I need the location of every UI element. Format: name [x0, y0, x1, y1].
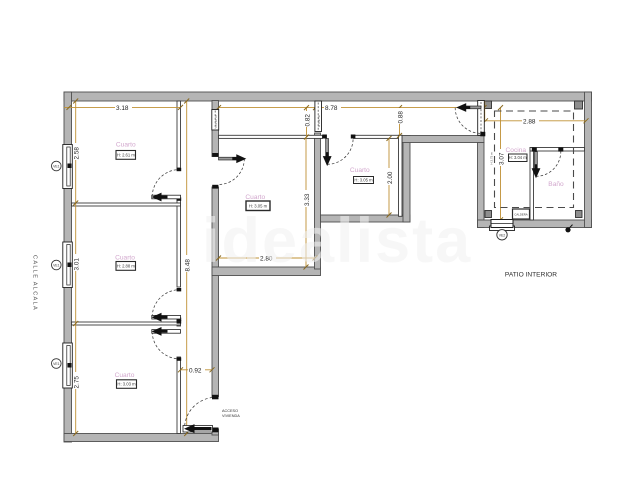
svg-text:8.78: 8.78 — [325, 105, 338, 112]
svg-text:VE1: VE1 — [53, 165, 60, 169]
svg-text:VE2: VE2 — [499, 233, 506, 237]
svg-text:H 2.72 m: H 2.72 m — [490, 152, 494, 165]
svg-text:idealista: idealista — [202, 206, 472, 276]
svg-text:2.88: 2.88 — [523, 119, 536, 126]
svg-text:3.01: 3.01 — [74, 258, 81, 271]
svg-text:3.07: 3.07 — [499, 152, 506, 165]
svg-text:CALLE ALCALA: CALLE ALCALA — [32, 255, 38, 311]
svg-text:0.92: 0.92 — [189, 368, 202, 375]
svg-text:Cuarto: Cuarto — [245, 194, 265, 201]
svg-text:H 0.97 m: H 0.97 m — [214, 115, 218, 128]
svg-text:2.00: 2.00 — [387, 171, 394, 184]
svg-text:H: 3.04 m: H: 3.04 m — [509, 155, 528, 160]
svg-text:Baño: Baño — [548, 181, 564, 188]
svg-text:Cuarto: Cuarto — [115, 254, 135, 261]
svg-text:VE1: VE1 — [53, 362, 60, 366]
svg-text:0.88: 0.88 — [398, 111, 405, 124]
svg-text:H: 2.61 m: H: 2.61 m — [117, 153, 136, 158]
svg-text:8.48: 8.48 — [185, 259, 192, 272]
svg-text:H: 3.03 m: H: 3.03 m — [117, 382, 136, 387]
svg-text:3.18: 3.18 — [116, 105, 129, 112]
svg-text:VE1: VE1 — [53, 264, 60, 268]
svg-text:H: 3.05 m: H: 3.05 m — [354, 178, 373, 183]
svg-text:Cuarto: Cuarto — [116, 142, 136, 149]
svg-text:Cocina: Cocina — [506, 147, 527, 154]
svg-text:Cuarto: Cuarto — [115, 372, 135, 379]
svg-text:2.75: 2.75 — [74, 376, 81, 389]
svg-text:CALDERA: CALDERA — [514, 213, 527, 217]
svg-text:PATIO INTERIOR: PATIO INTERIOR — [505, 271, 557, 278]
svg-text:VIVIENDA: VIVIENDA — [222, 414, 240, 418]
svg-text:Cuarto: Cuarto — [350, 167, 370, 174]
svg-text:H 0.97 m: H 0.97 m — [317, 114, 321, 127]
svg-text:2.58: 2.58 — [74, 147, 81, 160]
svg-text:0.82: 0.82 — [305, 114, 312, 127]
svg-text:H: 2.88 m: H: 2.88 m — [117, 264, 136, 269]
svg-text:3.33: 3.33 — [304, 193, 311, 206]
svg-text:ACCESO: ACCESO — [222, 409, 238, 413]
